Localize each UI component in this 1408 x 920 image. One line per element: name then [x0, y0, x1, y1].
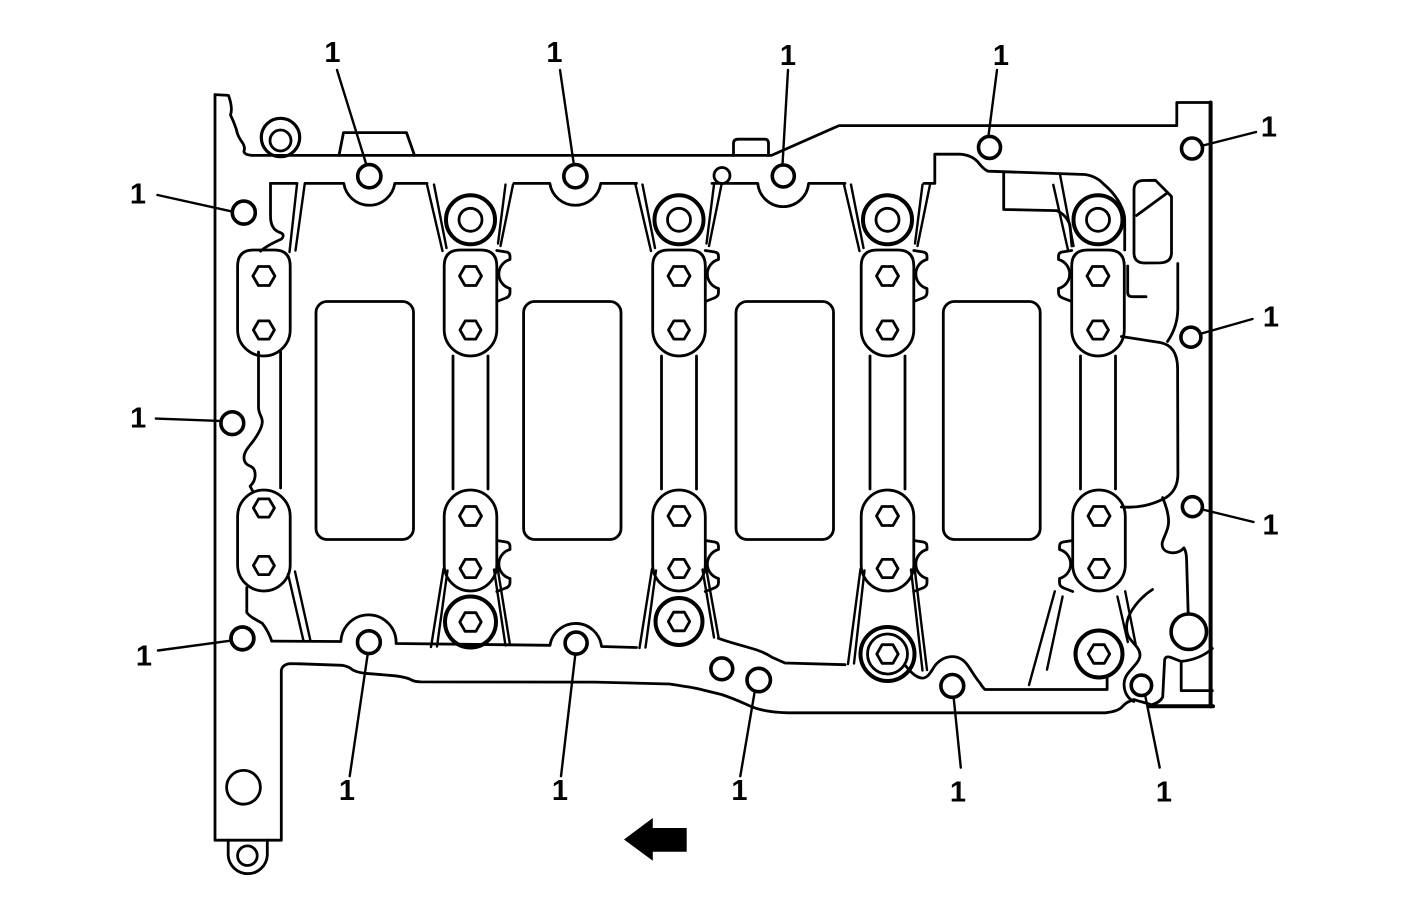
svg-text:1: 1 — [1261, 111, 1277, 143]
svg-text:1: 1 — [130, 178, 146, 210]
svg-text:1: 1 — [1263, 301, 1279, 333]
svg-text:1: 1 — [780, 40, 796, 72]
svg-text:1: 1 — [136, 640, 152, 672]
svg-text:1: 1 — [1263, 509, 1279, 541]
svg-text:1: 1 — [1156, 776, 1172, 808]
svg-text:1: 1 — [339, 775, 355, 807]
svg-text:1: 1 — [546, 37, 562, 69]
svg-text:1: 1 — [130, 402, 146, 434]
svg-text:1: 1 — [324, 37, 340, 69]
svg-text:1: 1 — [950, 776, 966, 808]
svg-text:1: 1 — [731, 775, 747, 807]
svg-text:1: 1 — [993, 40, 1009, 72]
svg-text:1: 1 — [552, 775, 568, 807]
